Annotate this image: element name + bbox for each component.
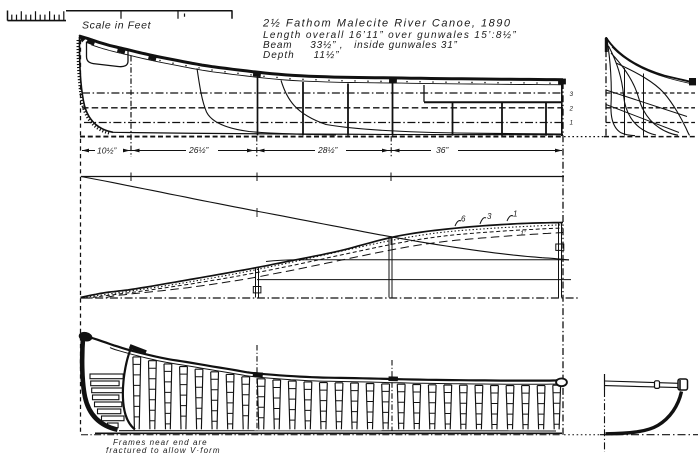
- svg-text:10½”: 10½”: [97, 146, 118, 156]
- svg-text:2: 2: [569, 106, 574, 113]
- svg-text:3: 3: [570, 91, 574, 98]
- svg-text:26½”: 26½”: [188, 145, 210, 155]
- svg-text:1: 1: [513, 210, 517, 219]
- svg-text:36”: 36”: [436, 145, 449, 155]
- svg-text:1’: 1’: [520, 231, 526, 238]
- svg-text:1: 1: [570, 120, 574, 127]
- svg-text:fractured to allow V·form: fractured to allow V·form: [106, 446, 221, 455]
- svg-text:28½”: 28½”: [317, 145, 339, 155]
- svg-text:3: 3: [487, 212, 492, 221]
- svg-text:Scale in Feet: Scale in Feet: [82, 20, 152, 32]
- svg-text:Depth 11½”: Depth 11½”: [263, 50, 340, 61]
- svg-text:2½ Fathom Malecite River C: 2½ Fathom Malecite River Canoe, 1890: [262, 18, 511, 30]
- svg-text:6: 6: [461, 215, 466, 224]
